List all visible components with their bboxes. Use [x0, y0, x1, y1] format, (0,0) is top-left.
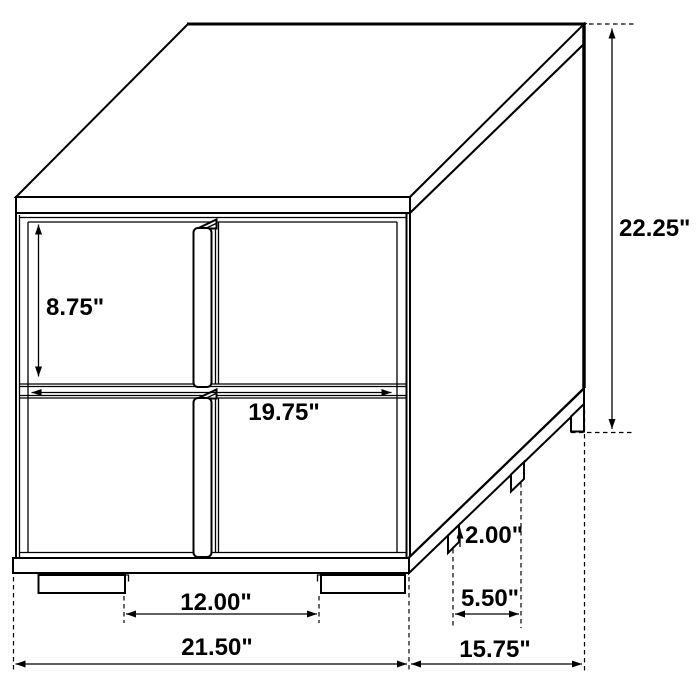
dim-side-foot-spacing-label: 5.50"	[461, 585, 519, 612]
dim-overall-height: 22.25"	[571, 24, 690, 433]
dim-foot-height-label: 2.00"	[465, 522, 523, 549]
dim-front-foot-gap: 12.00"	[124, 589, 319, 623]
dim-overall-height-label: 22.25"	[619, 215, 690, 242]
top-front-band	[16, 197, 410, 213]
furniture-dimension-drawing: 8.75" 22.25" 19.75" 2.00" 5.50" 12.00"	[0, 0, 700, 700]
dim-front-foot-gap-label: 12.00"	[180, 589, 251, 616]
dim-foot-height: 2.00"	[460, 522, 523, 549]
plinth-front-band	[13, 558, 409, 573]
handle-top-bar	[194, 228, 212, 387]
handle-bottom-bar	[194, 398, 212, 557]
dim-drawer-width-label: 19.75"	[248, 399, 319, 426]
diagram: 8.75" 22.25" 19.75" 2.00" 5.50" 12.00"	[0, 0, 700, 700]
foot-front-right	[321, 575, 405, 593]
dim-drawer-height-label: 8.75"	[46, 294, 104, 321]
foot-front-left	[39, 575, 126, 593]
dim-overall-depth-label: 15.75"	[459, 636, 530, 663]
dim-overall-width-label: 21.50"	[181, 634, 252, 661]
